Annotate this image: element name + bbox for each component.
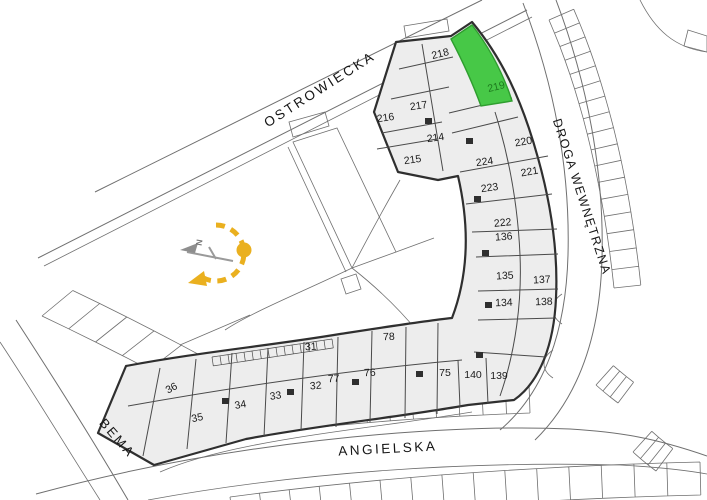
path-to-southwing-2 bbox=[180, 315, 250, 345]
unit-label-216[interactable]: 216 bbox=[376, 111, 395, 125]
north-label: N bbox=[194, 239, 205, 247]
street-label-droga-wewnetrzna: DROGA WEWNĘTRZNA bbox=[550, 117, 614, 277]
unit-label-214[interactable]: 214 bbox=[426, 131, 445, 145]
unit-label-224[interactable]: 224 bbox=[475, 155, 494, 169]
unit-label-134[interactable]: 134 bbox=[495, 297, 513, 310]
stair-core bbox=[466, 138, 473, 144]
unit-label-32[interactable]: 32 bbox=[309, 380, 322, 393]
stair-core bbox=[425, 118, 432, 124]
unit-label-75[interactable]: 75 bbox=[439, 367, 451, 379]
stair-core bbox=[485, 302, 492, 308]
parking-strip-angielska-lower bbox=[230, 462, 701, 500]
path-north bbox=[352, 180, 400, 268]
lawn-parcel-edge bbox=[288, 147, 346, 272]
lawn-parcel bbox=[293, 128, 396, 268]
compass: N bbox=[180, 225, 252, 286]
path-east-2 bbox=[352, 268, 418, 332]
unit-label-33[interactable]: 33 bbox=[269, 389, 282, 403]
unit-label-215[interactable]: 215 bbox=[403, 153, 422, 167]
site-plan: 216 217 218 214 215 219 220 224 221 223 … bbox=[0, 0, 707, 500]
unit-label-135[interactable]: 135 bbox=[496, 270, 514, 283]
unit-label-31[interactable]: 31 bbox=[305, 341, 318, 354]
top-right-parking-box bbox=[684, 30, 707, 52]
upper-plot bbox=[289, 112, 329, 137]
bema-lower-edge bbox=[0, 342, 100, 500]
stair-core bbox=[287, 389, 294, 395]
stair-core bbox=[352, 379, 359, 385]
street-label-ostrowiecka: OSTROWIECKA bbox=[261, 48, 378, 130]
sun-arc-arrowhead-icon bbox=[188, 271, 207, 286]
unit-label-138[interactable]: 138 bbox=[535, 296, 553, 309]
street-label-angielska: ANGIELSKA bbox=[338, 438, 438, 458]
unit-label-136[interactable]: 136 bbox=[495, 230, 513, 243]
unit-label-140[interactable]: 140 bbox=[464, 369, 482, 381]
unit-label-217[interactable]: 217 bbox=[409, 99, 428, 113]
unit-label-34[interactable]: 34 bbox=[234, 398, 248, 412]
parking-group-east-1 bbox=[596, 366, 634, 403]
path-to-southwing bbox=[225, 268, 352, 330]
unit-label-77[interactable]: 77 bbox=[328, 373, 341, 386]
stair-core bbox=[476, 352, 483, 358]
top-right-corner-curve bbox=[640, 0, 707, 52]
stair-core bbox=[474, 196, 481, 202]
unit-label-137[interactable]: 137 bbox=[533, 274, 551, 287]
stair-core bbox=[416, 371, 423, 377]
unit-label-78[interactable]: 78 bbox=[383, 331, 395, 343]
unit-label-222[interactable]: 222 bbox=[493, 216, 512, 230]
site-plan-svg: 216 217 218 214 215 219 220 224 221 223 … bbox=[0, 0, 707, 500]
unit-label-76[interactable]: 76 bbox=[364, 367, 376, 380]
sun-position-dot-icon bbox=[237, 243, 252, 258]
unit-label-223[interactable]: 223 bbox=[480, 181, 499, 195]
angielska-lower-edge bbox=[148, 464, 707, 500]
stair-core bbox=[222, 398, 229, 404]
unit-label-139[interactable]: 139 bbox=[490, 370, 508, 382]
stair-core bbox=[482, 250, 489, 256]
path-east-1 bbox=[396, 238, 434, 252]
small-square-plot bbox=[341, 274, 361, 294]
